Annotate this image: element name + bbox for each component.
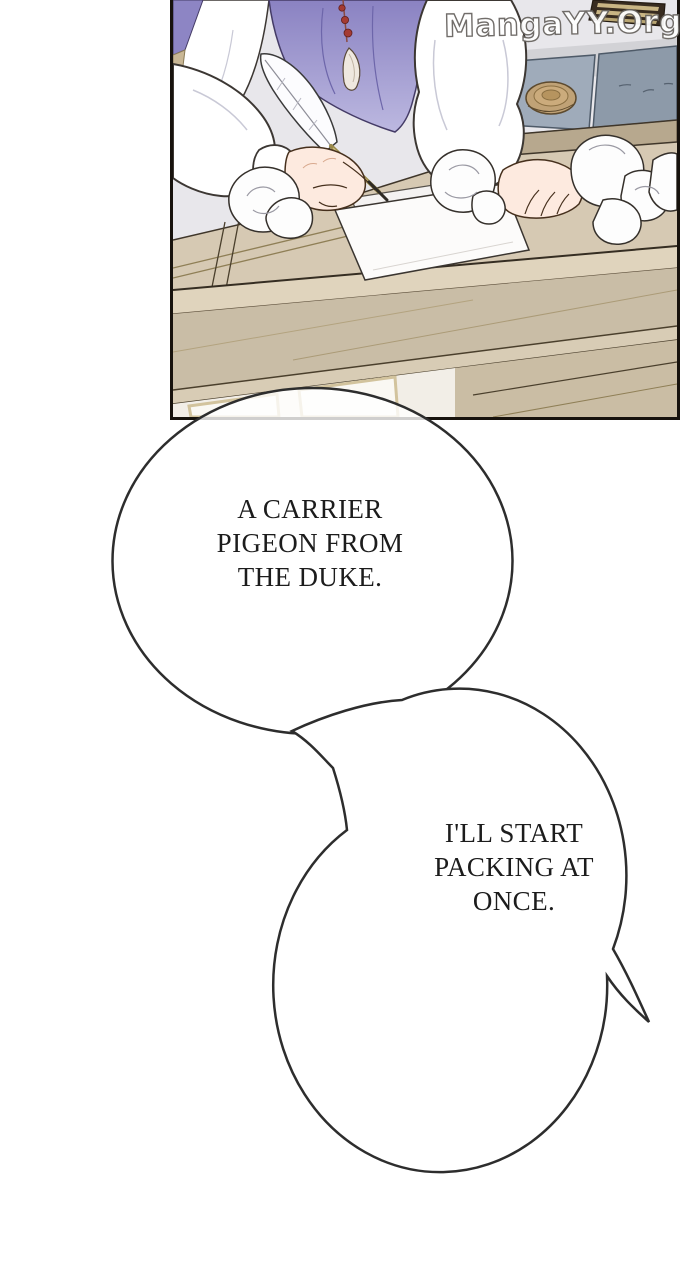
dialogue-line: A CARRIER (160, 492, 460, 526)
speech-bubble-1-text: A CARRIER PIGEON FROM THE DUKE. (160, 492, 460, 594)
watermark: MangaYY.Org (444, 3, 690, 44)
dialogue-line: THE DUKE. (160, 560, 460, 594)
dialogue-line: PIGEON FROM (160, 526, 460, 560)
speech-bubble-2-text: I'LL START PACKING AT ONCE. (364, 816, 664, 918)
dialogue-line: ONCE. (364, 884, 664, 918)
manga-page: MangaYY.Org A CARRIER PIGEON FROM THE DU… (0, 0, 690, 1280)
dialogue-line: I'LL START (364, 816, 664, 850)
speech-bubble-layer (0, 0, 690, 1280)
speech-bubble-2 (273, 689, 649, 1173)
dialogue-line: PACKING AT (364, 850, 664, 884)
